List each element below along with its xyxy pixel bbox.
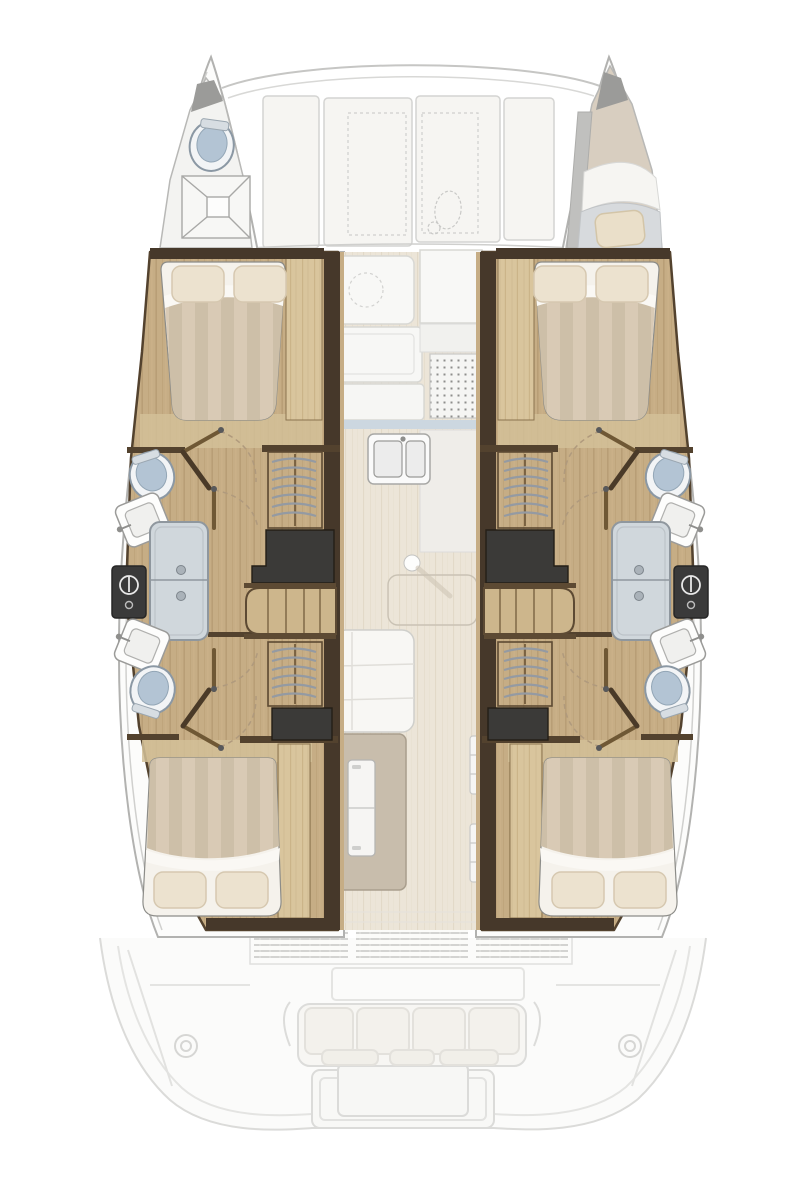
cabin-side-panel [286,258,322,420]
galley-sink [368,434,430,484]
pillow [234,266,286,302]
starboard-bow-berth [566,66,662,248]
bulkhead [150,248,324,259]
shower-control-panel [112,566,146,618]
aft-cabin-bed [143,758,281,916]
deck-panel [324,98,412,246]
bulkhead [127,734,179,740]
companionway-steps [246,588,336,634]
settee [334,630,414,890]
pillow [172,266,224,302]
shower-pan [150,522,208,640]
stove-grate [430,354,482,418]
charcoal-locker [272,708,332,740]
counter-blue-trim [420,420,482,429]
counter-blue-trim [336,420,424,429]
bulkhead [206,918,326,930]
pillow [154,872,206,908]
cockpit-area [100,920,706,1130]
deck-panel [263,96,319,248]
pillow [216,872,268,908]
shower-pan-bow [182,176,250,238]
cockpit-bench [284,1002,540,1066]
wardrobe-hangers [268,452,322,528]
fridge-icon [348,760,375,856]
port-bow-head [160,78,252,248]
bulkhead [262,445,340,452]
deck-panel [504,98,554,240]
deck-panel [416,96,500,242]
step-edge [244,634,336,639]
salon [332,250,491,930]
cockpit-table [338,1064,468,1116]
cabin-side-panel [278,744,310,918]
floorplan-svg [0,0,800,1200]
berth-pillow [594,210,645,249]
floorplan-canvas [0,0,800,1200]
crossbeam-line-2 [228,77,594,98]
forward-cabin-bed [161,262,286,420]
wardrobe-hangers [268,642,322,706]
salon-wall-lining [340,252,344,930]
